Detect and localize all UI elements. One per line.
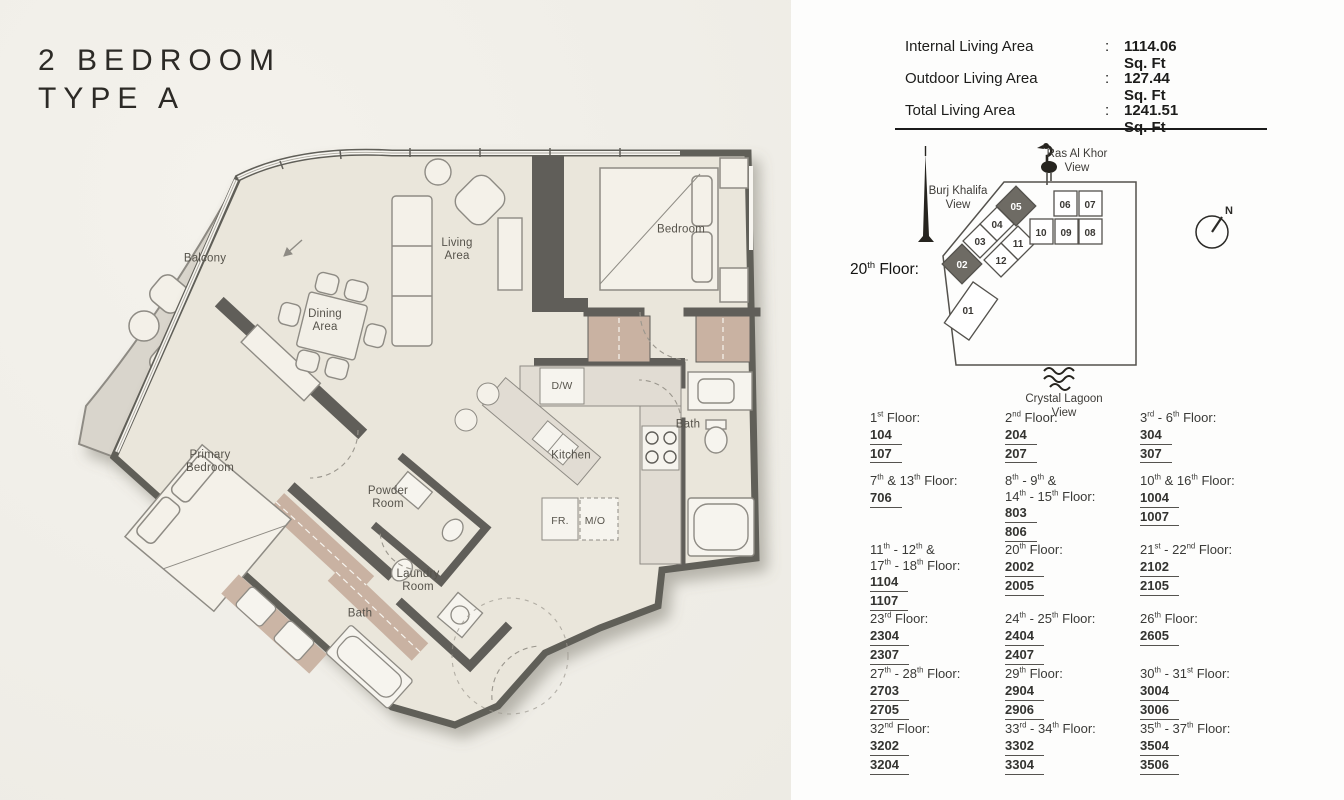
stat-colon: : [1105,38,1109,55]
floor-group: 24th - 25th Floor: 2404 2407 [993,611,1128,666]
floor-group: 23rd Floor: 2304 2307 [858,611,993,666]
floor-plan: Balcony Living Area Dining Area Bedroom … [40,100,800,760]
unit-number: 2304 [870,629,909,646]
floor-group: 30th - 31st Floor: 3004 3006 [1128,666,1263,721]
unit-number: 2404 [1005,629,1044,646]
unit-number: 2005 [1005,579,1044,596]
room-label-bath1: Bath [676,418,700,431]
unit-number: 2703 [870,684,909,701]
bathtub [688,498,754,556]
key-plan: Ras Al Khor View Burj Khalifa View 05 04 [840,140,1270,418]
toilet [705,427,727,453]
unit-number: 2605 [1140,629,1179,646]
floor-range-label: 1st Floor: [870,410,993,426]
ras-al-khor-label: Ras Al Khor [1047,148,1108,160]
room-label-powder-room: Powder Room [368,485,408,511]
floor-range-label: 3rd - 6th Floor: [1140,410,1263,426]
floor-range-label: 7th & 13th Floor: [870,473,993,489]
keyplan-unit-10: 10 [1030,219,1053,244]
floor-range-label: 32nd Floor: [870,721,993,737]
unit-number: 3506 [1140,758,1179,775]
floor-range-label: 29th Floor: [1005,666,1128,682]
svg-text:N: N [1225,205,1233,217]
burj-label: Burj Khalifa [929,185,988,197]
key-plan-drawing: Ras Al Khor View Burj Khalifa View 05 04 [840,140,1270,418]
floor-group: 2nd Floor: 204 207 [993,410,1128,473]
room-label-dining: Dining Area [308,308,342,334]
unit-number: 3302 [1005,739,1044,756]
unit-number: 706 [870,491,902,508]
unit-number: 207 [1005,447,1037,464]
room-label-balcony: Balcony [184,252,226,265]
floor-group: 27th - 28th Floor: 2703 2705 [858,666,993,721]
unit-number: 2906 [1005,703,1044,720]
divider [895,128,1267,130]
keyplan-unit-08: 08 [1079,219,1102,244]
floor-group: 10th & 16th Floor: 1004 1007 [1128,473,1263,542]
compass-icon: N [1196,205,1233,248]
unit-number: 1104 [870,575,908,592]
floor-range-label: 35th - 37th Floor: [1140,721,1263,737]
keyplan-unit-06: 06 [1054,191,1077,216]
key-plan-floor-label: 20th Floor: [850,261,919,279]
unit-number: 304 [1140,428,1172,445]
floor-range-label: 10th & 16th Floor: [1140,473,1263,489]
stat-label: Outdoor Living Area [905,70,1105,87]
unit-number: 3504 [1140,739,1179,756]
stat-label: Total Living Area [905,102,1105,119]
floor-group: 32nd Floor: 3202 3204 [858,721,993,799]
ras-al-khor-label2: View [1065,162,1090,174]
floor-range-label: 8th - 9th &14th - 15th Floor: [1005,473,1128,504]
floor-group: 11th - 12th &17th - 18th Floor: 1104 110… [858,542,993,611]
keyplan-unit-09: 09 [1055,219,1078,244]
floors-list: 1st Floor: 104 107 2nd Floor: 204 207 3r… [858,410,1318,799]
unit-number: 2102 [1140,560,1179,577]
side-table [425,159,451,185]
room-label-kitchen: Kitchen [551,449,591,462]
stat-colon: : [1105,102,1109,119]
unit-number: 2105 [1140,579,1179,596]
svg-text:07: 07 [1084,200,1096,211]
unit-number: 2705 [870,703,909,720]
unit-number: 3004 [1140,684,1179,701]
floor-group: 20th Floor: 2002 2005 [993,542,1128,611]
svg-text:01: 01 [962,306,974,317]
floor-group: 8th - 9th &14th - 15th Floor: 803 806 [993,473,1128,542]
floor-group: 29th Floor: 2904 2906 [993,666,1128,721]
floor-range-label: 20th Floor: [1005,542,1128,558]
unit-number: 3006 [1140,703,1179,720]
floor-group: 26th Floor: 2605 [1128,611,1263,666]
unit-number: 3304 [1005,758,1044,775]
floor-group: 35th - 37th Floor: 3504 3506 [1128,721,1263,799]
lagoon-label: Crystal Lagoon [1025,393,1102,405]
floor-range-label: 33rd - 34th Floor: [1005,721,1128,737]
floor-group: 33rd - 34th Floor: 3302 3304 [993,721,1128,799]
stat-label: Internal Living Area [905,38,1105,55]
unit-number: 3202 [870,739,909,756]
room-label-bath2: Bath [348,607,372,620]
room-label-laundry: Laundry Room [397,568,440,594]
label-dishwasher: D/W [551,380,572,392]
svg-text:03: 03 [974,237,986,248]
keyplan-unit-07: 07 [1079,191,1102,216]
unit-number: 2407 [1005,648,1044,665]
svg-text:04: 04 [991,220,1003,231]
unit-number: 307 [1140,447,1172,464]
room-label-bedroom: Bedroom [657,223,705,236]
stat-value: 1241.51 Sq. Ft [1124,102,1178,136]
label-microwave: M/O [585,515,605,527]
floor-group: 1st Floor: 104 107 [858,410,993,473]
floor-range-label: 27th - 28th Floor: [870,666,993,682]
floor-range-label: 26th Floor: [1140,611,1263,627]
stat-value: 127.44 Sq. Ft [1124,70,1170,104]
svg-text:08: 08 [1084,228,1096,239]
unit-number: 107 [870,447,902,464]
floor-range-label: 23rd Floor: [870,611,993,627]
floor-range-label: 11th - 12th &17th - 18th Floor: [870,542,993,573]
floor-group: 21st - 22nd Floor: 2102 2105 [1128,542,1263,611]
unit-number: 2002 [1005,560,1044,577]
unit-number: 2307 [870,648,909,665]
label-fridge: FR. [551,515,569,527]
console-table [498,218,522,290]
unit-number: 2904 [1005,684,1044,701]
unit-number: 803 [1005,506,1037,523]
stat-value: 1114.06 Sq. Ft [1124,38,1177,72]
unit-number: 204 [1005,428,1037,445]
stool [455,409,477,431]
unit-number: 806 [1005,525,1037,542]
floor-range-label: 21st - 22nd Floor: [1140,542,1263,558]
unit-number: 1004 [1140,491,1179,508]
svg-text:09: 09 [1060,228,1072,239]
unit-number: 1007 [1140,510,1179,527]
svg-text:11: 11 [1013,239,1024,250]
svg-text:12: 12 [995,256,1007,267]
unit-number: 3204 [870,758,909,775]
page: 2 BEDROOM TYPE A [0,0,1344,800]
floor-group: 3rd - 6th Floor: 304 307 [1128,410,1263,473]
floor-range-label: 2nd Floor: [1005,410,1128,426]
room-label-primary-bedroom: Primary Bedroom [186,449,234,475]
floor-range-label: 24th - 25th Floor: [1005,611,1128,627]
balcony-table [129,311,159,341]
stat-colon: : [1105,70,1109,87]
unit-number: 1107 [870,594,908,611]
stool [477,383,499,405]
svg-text:05: 05 [1010,202,1022,213]
lagoon-waves-icon [1044,368,1074,390]
svg-text:02: 02 [956,260,968,271]
floor-range-label: 30th - 31st Floor: [1140,666,1263,682]
unit-number: 104 [870,428,902,445]
svg-text:06: 06 [1059,200,1071,211]
floor-group: 7th & 13th Floor: 706 [858,473,993,542]
svg-text:10: 10 [1035,228,1047,239]
burj-label2: View [946,199,971,211]
room-label-living: Living Area [441,237,472,263]
sofa [392,196,432,346]
